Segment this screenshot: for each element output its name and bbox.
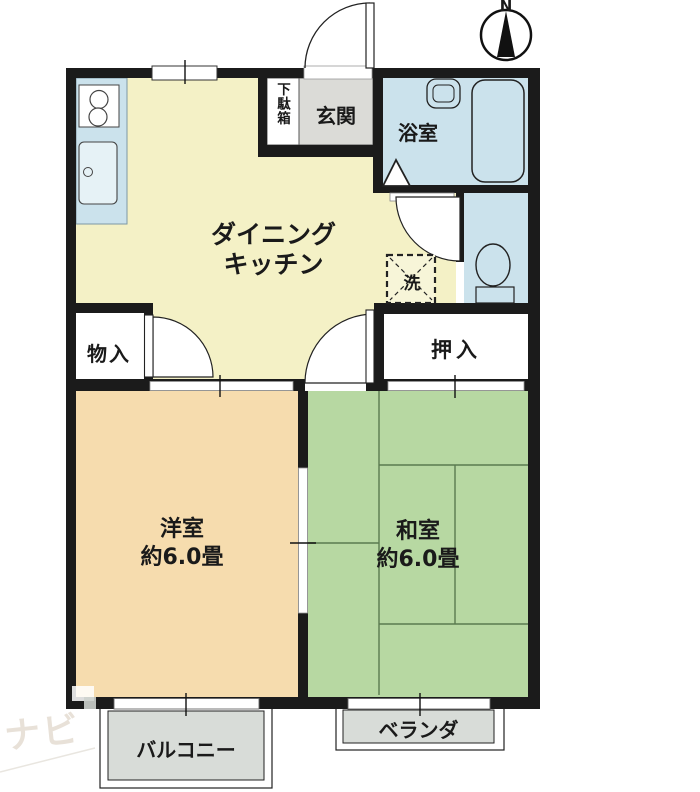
shoe-cabinet-box [267,78,299,145]
wall-top [66,68,540,78]
floor-plan: ダイニング キッチン 玄関 下駄箱 浴室 洗 押入 物入 洋室 約6.0畳 和室… [0,0,700,792]
bathtub-icon [472,80,524,182]
floor-plan-drawing [0,0,700,792]
bathroom-sink-icon [427,79,460,108]
wall-closet-top [374,303,540,314]
wall-closet-left [374,303,384,391]
watermark-smudge [84,697,96,709]
sliding-door-western-japanese [299,468,308,613]
sink-drain-icon [84,168,93,177]
storage-door-leaf [145,315,154,377]
balcony-floor [108,711,264,780]
watermark-text: ナビ [1,700,82,760]
wall-entrance-left [258,78,267,146]
front-door-arc [305,3,370,68]
sliding-door-dk-western [150,382,293,391]
wall-storage-top [66,303,153,313]
toilet-tank-icon [476,287,514,303]
closet-interior [384,313,528,381]
entrance-floor [299,78,373,145]
stove-burner-icon [89,108,107,126]
laundry-machine-space [387,255,435,303]
western-room-floor [76,391,298,697]
closet-fusuma-doors [388,382,524,391]
front-door-leaf [366,3,374,68]
toilet-bowl-icon [476,244,510,286]
storage-interior [76,313,144,379]
window-japanese-room [348,699,490,710]
japanese-room-door-leaf [366,310,374,383]
wall-entrance-step [258,145,383,157]
veranda-floor [343,710,494,743]
japanese-room-floor [308,391,528,697]
wall-bathroom-left [373,78,383,193]
front-door-threshold [304,66,372,79]
stove-burner-icon [90,91,108,109]
wall-storage-stub-top [144,303,153,316]
